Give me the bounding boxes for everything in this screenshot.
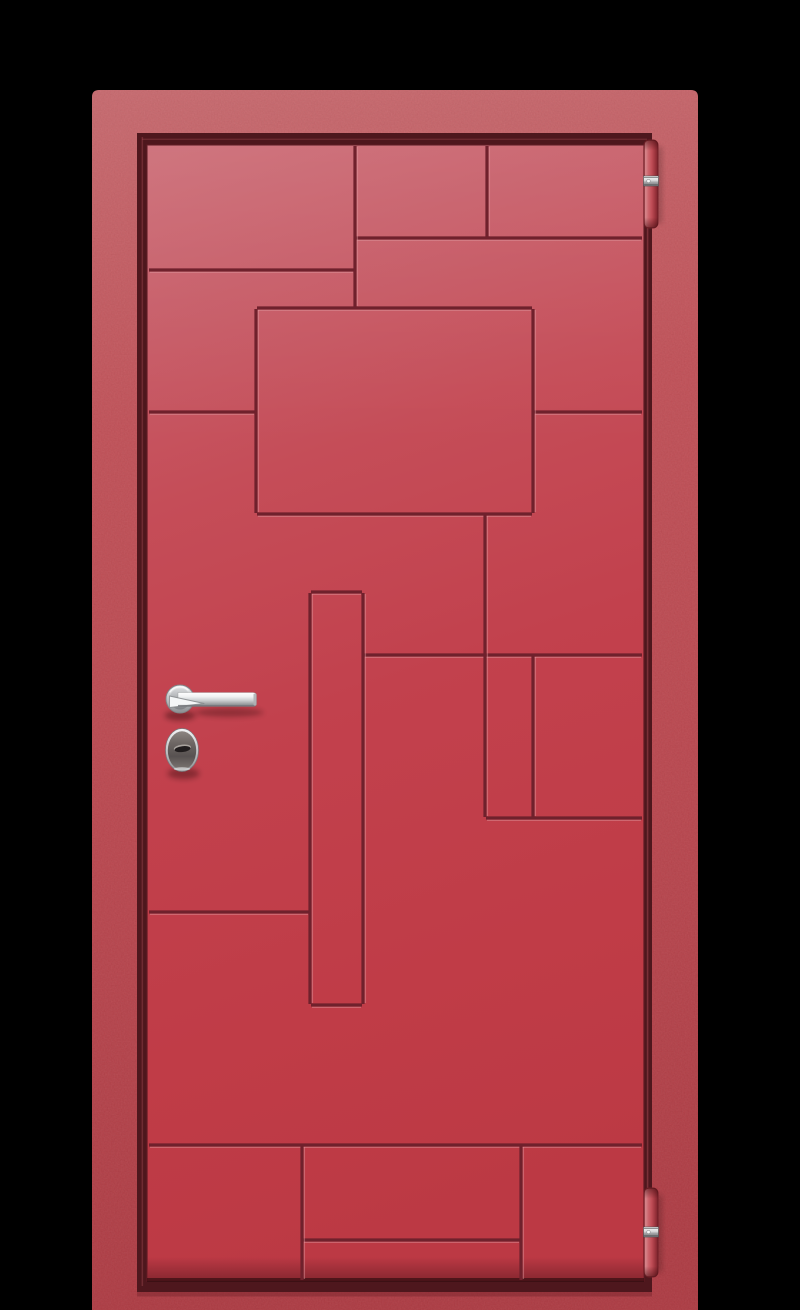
hinge-top [644,140,663,228]
leaf-sheen [147,145,644,445]
keyhole-escutcheon [166,729,200,780]
hinge-screw [647,179,651,183]
door-svg [0,0,800,1310]
door-product-image [0,0,800,1310]
rebate-highlight-top [142,139,647,140]
sill-shadow [137,1292,652,1297]
hinge-screw [647,1230,651,1234]
lever-end [254,694,257,706]
rebate-highlight-left [142,137,144,1286]
rebate-highlight-right [647,149,649,1277]
hinge-bottom [644,1188,663,1277]
leaf-bottom-shade [147,1257,644,1281]
leaf-bottom-edge [147,1278,644,1282]
door [92,90,698,1310]
lever-bottom-edge [178,705,255,707]
